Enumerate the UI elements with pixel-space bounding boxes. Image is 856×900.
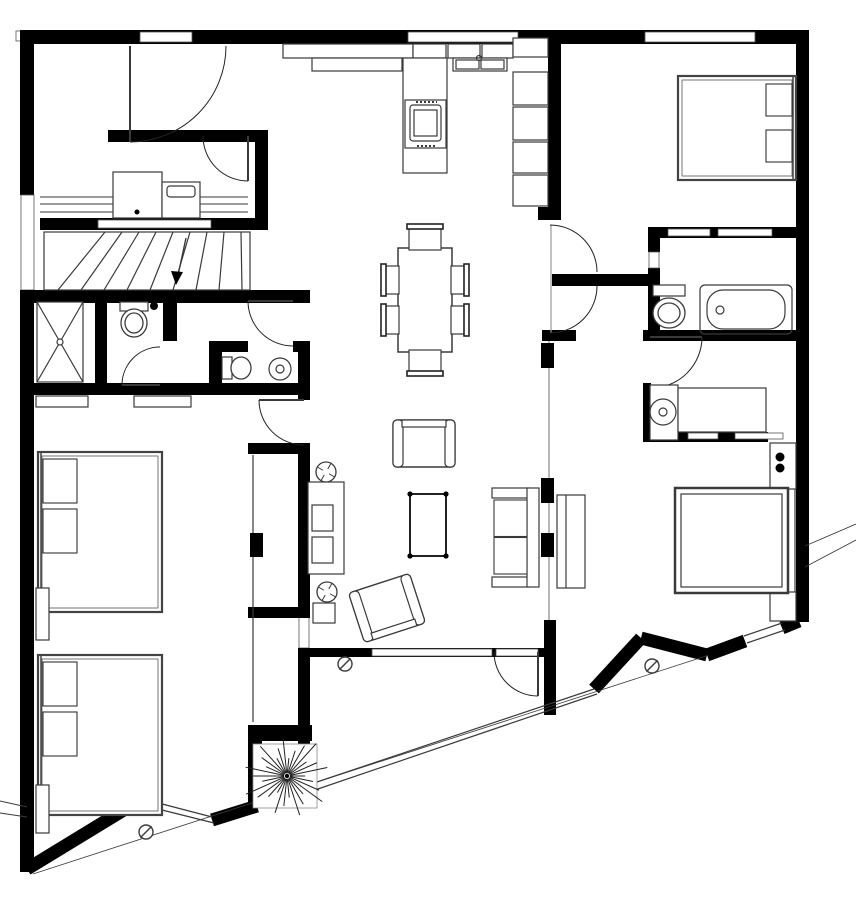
- wall-laundry-top: [108, 130, 268, 142]
- window-angled-se-b: [747, 630, 785, 643]
- kitchen-counter-a: [283, 44, 413, 58]
- dining-chair-north-back: [407, 224, 443, 229]
- wall-closet-pier: [250, 533, 263, 557]
- dining-table: [398, 248, 452, 352]
- nightstand-b: [770, 592, 796, 621]
- desk-chair-b: [312, 537, 333, 563]
- door-laundry-arc: [203, 136, 248, 181]
- wall-stair-void-h: [248, 725, 312, 741]
- palm-plant-center: [285, 774, 289, 778]
- opening-corridor: [299, 613, 309, 648]
- wall-angled-se-right: [707, 641, 745, 655]
- toilet-right-bowl-inner: [658, 303, 680, 323]
- wall-hall-east-a: [648, 227, 660, 252]
- site-line-right-b: [805, 540, 856, 567]
- wall-bath-left-bottom: [28, 383, 310, 395]
- door-wc-arc: [248, 301, 293, 346]
- dining-chair-north: [409, 227, 441, 250]
- wall-left-lower: [20, 290, 34, 872]
- opening-hall-east: [649, 252, 659, 268]
- sofa-living-cushion-1: [494, 500, 527, 537]
- vanity-cabinet: [650, 385, 678, 440]
- dining-chair-west-2-back: [381, 304, 386, 336]
- dining-chair-east-2-back: [464, 304, 469, 336]
- cabinet-5: [513, 175, 548, 206]
- bed-top-right-pillow-2: [766, 130, 792, 162]
- window-top-entry: [140, 32, 192, 42]
- site-line-right-a: [805, 524, 856, 546]
- side-table: [313, 603, 335, 623]
- wc-toilet-bowl: [231, 357, 251, 379]
- wall-kitchen-stub: [538, 207, 561, 220]
- armchair-center: [393, 420, 455, 467]
- nightstand-dot-a: [776, 453, 785, 462]
- wc-sink: [269, 358, 291, 380]
- door-hall-arc: [550, 286, 597, 333]
- wall-angled-se-left: [594, 638, 641, 689]
- kitchen-upper-c: [482, 44, 513, 58]
- toilet-left-bowl-inner: [125, 313, 143, 333]
- window-bedroom1-closet-a: [668, 229, 710, 236]
- wall-wc-top-a: [209, 341, 248, 352]
- wall-angled-se-mid: [641, 638, 707, 655]
- sofa-living-cushion-2: [494, 538, 527, 575]
- wall-living-east-lower: [544, 620, 556, 715]
- wall-closet-divider: [248, 607, 310, 618]
- bath-dot: [150, 302, 158, 310]
- stool-b: [317, 582, 337, 602]
- wall-shower-divider: [95, 303, 107, 383]
- kitchen-upper-a: [413, 44, 446, 58]
- floor-plan-canvas: [0, 0, 856, 900]
- door-bedroom2-arc: [650, 337, 702, 388]
- wall-angled-sw-short: [212, 806, 257, 820]
- wall-kitchen-right: [548, 30, 561, 220]
- radiator-left-a: [36, 588, 49, 640]
- stool-a: [316, 462, 336, 482]
- door-entry-arc: [130, 46, 226, 142]
- wall-bath-pier: [163, 303, 177, 341]
- bed-left-1-pillow-2: [43, 509, 77, 553]
- door-bedroomL-arc: [259, 400, 304, 445]
- bathtub-inner: [707, 290, 785, 329]
- wall-laundry-right: [255, 130, 268, 230]
- stove-inner: [414, 110, 437, 136]
- wall-angled-se-end: [782, 621, 799, 628]
- bed-left-1-pillow-1: [43, 459, 77, 503]
- cabinet-1: [513, 38, 548, 57]
- kitchen-counter-b: [312, 58, 402, 71]
- closet-slide-a: [688, 433, 718, 439]
- shower-drain: [57, 339, 63, 345]
- opening-terrace-door: [496, 649, 538, 656]
- window-angled-se-a: [744, 623, 782, 636]
- bathtub-faucet: [716, 306, 724, 314]
- bed-left-2-pillow-1: [43, 662, 77, 706]
- coffee-table: [410, 494, 446, 556]
- closet-slide-b: [735, 433, 783, 439]
- sofa-living-arm-top: [492, 488, 529, 498]
- desk-chair-a: [312, 505, 333, 531]
- wall-corridor-a: [298, 341, 310, 400]
- coffee-table-leg-4: [443, 553, 448, 558]
- wall-hall-south-stub: [542, 330, 576, 341]
- closet-shelf-a: [36, 396, 88, 407]
- closet-hall: [678, 388, 766, 432]
- armchair-center-back: [402, 420, 446, 427]
- floor-plan-page: [0, 0, 856, 900]
- cabinet-2: [513, 72, 548, 105]
- door-terrace-arc: [494, 652, 538, 696]
- stairs-outline: [44, 232, 250, 290]
- toilet-right-tank: [653, 285, 685, 296]
- kitchen-upper-b: [448, 44, 480, 58]
- pier-living-east-2: [541, 478, 554, 503]
- cabinet-4: [513, 142, 548, 173]
- sofa-living-arm-bottom: [492, 577, 529, 587]
- armchair-tilted: [349, 573, 426, 642]
- window-bedroom1-closet-b: [718, 229, 772, 236]
- coffee-table-leg-3: [407, 553, 412, 558]
- dining-chair-south-back: [407, 371, 443, 376]
- pier-living-east-1: [541, 343, 554, 368]
- wc-sink-drain: [276, 365, 284, 373]
- wardrobe-bedroom2: [557, 495, 585, 588]
- coffee-table-leg-1: [407, 491, 412, 496]
- pier-living-east-3: [541, 533, 554, 557]
- dining-chair-south: [409, 350, 441, 373]
- bed-top-right-pillow-1: [766, 84, 792, 116]
- wall-right: [796, 30, 809, 622]
- window-top-kitchen: [408, 32, 518, 42]
- sofa-living-back: [527, 488, 539, 587]
- closet-shelf-b: [134, 396, 191, 407]
- bed-bottom-right-inner: [681, 494, 782, 587]
- wall-hall-middle: [552, 274, 648, 286]
- nightstand-dot-b: [776, 464, 785, 473]
- laundry-dot: [135, 210, 140, 215]
- wall-bath-right-bottom: [643, 330, 797, 341]
- cabinet-3: [513, 107, 548, 140]
- window-top-bedroom: [645, 32, 755, 42]
- dining-chair-west-1-back: [381, 264, 386, 296]
- coffee-table-leg-2: [443, 491, 448, 496]
- wall-left-upper: [20, 30, 34, 195]
- door-bedroom1-arc: [550, 225, 597, 272]
- stair-shaft-panel: [21, 195, 34, 290]
- sink-basin-a: [456, 60, 479, 69]
- glass-wall-terrace-b: [309, 694, 597, 792]
- door-ensuite-arc: [122, 347, 160, 385]
- window-living-south: [372, 649, 492, 656]
- bed-left-2-pillow-2: [43, 712, 77, 756]
- sink-basin-b: [481, 60, 504, 69]
- window-laundry-hatch: [98, 220, 211, 228]
- radiator-left-b: [36, 785, 49, 833]
- dining-chair-east-1-back: [464, 264, 469, 296]
